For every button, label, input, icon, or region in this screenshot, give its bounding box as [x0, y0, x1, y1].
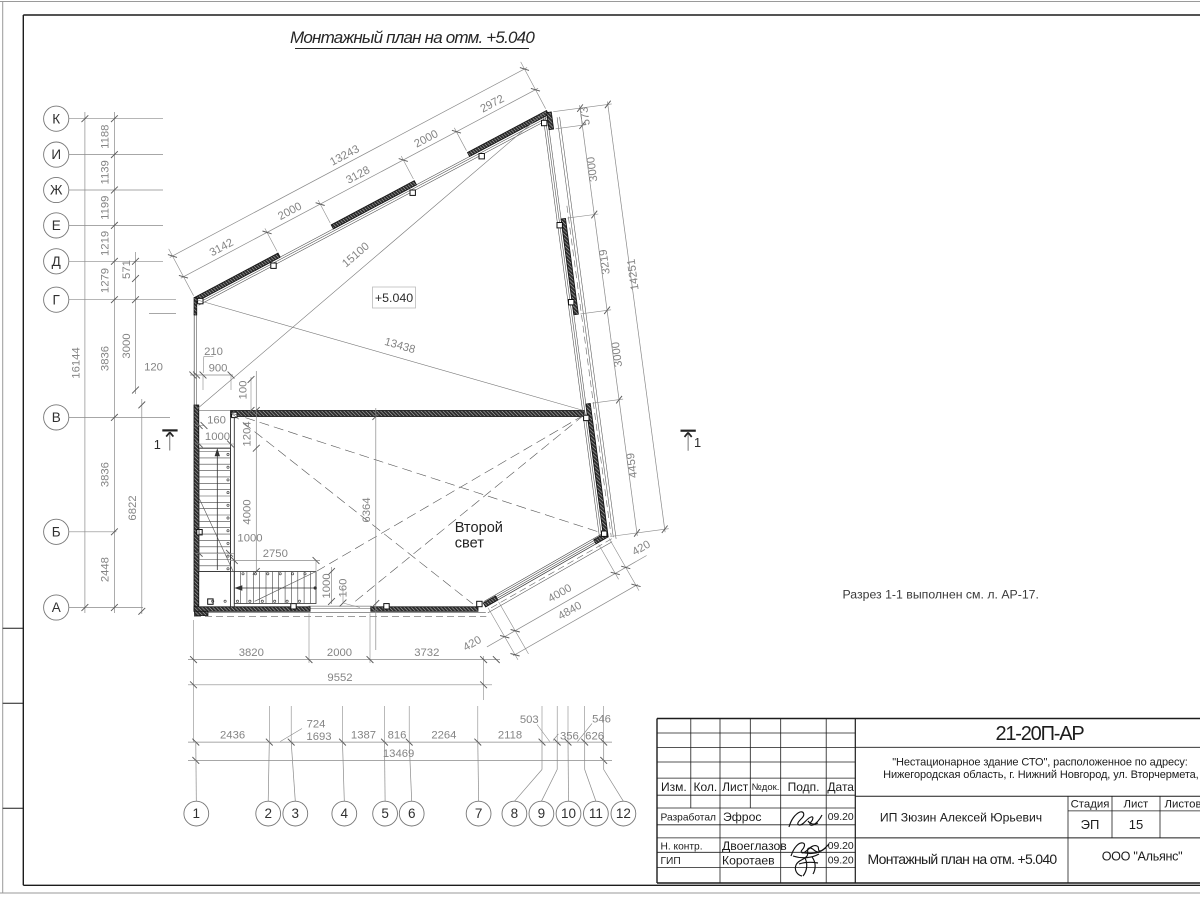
- svg-text:1000: 1000: [205, 431, 230, 443]
- svg-text:3: 3: [292, 806, 300, 821]
- svg-text:1188: 1188: [100, 125, 112, 149]
- svg-text:"Нестационарное здание СТО", р: "Нестационарное здание СТО", расположенн…: [892, 756, 1188, 768]
- svg-text:Лист: Лист: [722, 780, 749, 794]
- svg-text:ИП Зюзин Алексей Юрьевич: ИП Зюзин Алексей Юрьевич: [880, 811, 1042, 825]
- svg-text:Нижегородская область, г. Нижн: Нижегородская область, г. Нижний Новгоро…: [883, 769, 1200, 781]
- svg-text:09.20: 09.20: [828, 856, 854, 867]
- svg-text:Н. контр.: Н. контр.: [661, 842, 703, 853]
- svg-text:21-20П-АР: 21-20П-АР: [995, 723, 1084, 745]
- svg-text:Кол.: Кол.: [694, 780, 718, 794]
- svg-text:А: А: [52, 600, 61, 615]
- svg-text:2448: 2448: [100, 557, 112, 582]
- svg-text:6: 6: [408, 806, 416, 821]
- svg-text:Г: Г: [53, 292, 61, 307]
- svg-text:Ж: Ж: [50, 183, 63, 198]
- svg-text:3836: 3836: [100, 462, 112, 487]
- svg-text:Д: Д: [52, 254, 61, 269]
- svg-text:Дата: Дата: [827, 780, 854, 794]
- svg-text:Лист: Лист: [1124, 799, 1150, 811]
- svg-text:В: В: [52, 410, 61, 425]
- svg-text:3836: 3836: [100, 346, 112, 371]
- svg-text:Коротаев: Коротаев: [722, 854, 775, 868]
- svg-text:1000: 1000: [321, 573, 333, 598]
- svg-text:09.20: 09.20: [828, 841, 854, 852]
- svg-text:120: 120: [144, 361, 163, 373]
- svg-text:2: 2: [264, 806, 272, 821]
- svg-text:724: 724: [307, 719, 326, 731]
- svg-text:816: 816: [388, 729, 407, 741]
- svg-text:100: 100: [237, 381, 249, 400]
- svg-text:Стадия: Стадия: [1071, 799, 1110, 811]
- svg-text:6364: 6364: [361, 497, 373, 522]
- svg-text:626: 626: [585, 731, 604, 743]
- svg-text:Разработал: Разработал: [661, 811, 717, 823]
- svg-text:573: 573: [578, 106, 592, 126]
- svg-text:1000: 1000: [237, 533, 262, 545]
- svg-text:571: 571: [121, 260, 133, 279]
- svg-text:ООО "Альянс": ООО "Альянс": [1102, 850, 1183, 864]
- svg-text:1: 1: [154, 437, 161, 452]
- svg-text:5: 5: [381, 806, 389, 821]
- svg-text:1693: 1693: [306, 731, 331, 743]
- svg-text:900: 900: [209, 363, 228, 375]
- svg-text:09.20: 09.20: [828, 812, 854, 823]
- svg-text:160: 160: [207, 414, 226, 426]
- svg-text:3732: 3732: [414, 647, 439, 659]
- svg-text:503: 503: [520, 714, 539, 726]
- svg-text:10: 10: [561, 806, 576, 821]
- svg-text:Второй: Второй: [455, 520, 503, 536]
- svg-text:Изм.: Изм.: [661, 780, 687, 794]
- svg-text:3000: 3000: [121, 333, 133, 358]
- svg-text:Разрез 1-1 выполнен см. л. АР-: Разрез 1-1 выполнен см. л. АР-17.: [843, 587, 1039, 601]
- svg-text:+5.040: +5.040: [375, 291, 413, 305]
- svg-text:160: 160: [338, 579, 350, 598]
- svg-text:3820: 3820: [239, 647, 264, 659]
- svg-text:Е: Е: [52, 218, 61, 233]
- svg-text:ЭП: ЭП: [1081, 817, 1100, 832]
- svg-text:7: 7: [475, 806, 483, 821]
- svg-text:1387: 1387: [351, 729, 376, 741]
- svg-text:1199: 1199: [100, 196, 112, 220]
- svg-text:1: 1: [193, 806, 201, 821]
- svg-text:свет: свет: [455, 536, 485, 552]
- svg-text:№док.: №док.: [752, 782, 780, 793]
- svg-text:Монтажный план на отм. +5.040: Монтажный план на отм. +5.040: [290, 28, 535, 47]
- svg-text:4000: 4000: [242, 499, 254, 524]
- svg-text:9: 9: [538, 806, 546, 821]
- svg-text:Б: Б: [52, 524, 61, 539]
- svg-text:1279: 1279: [100, 268, 112, 293]
- svg-text:6822: 6822: [127, 495, 139, 520]
- svg-text:1204: 1204: [242, 421, 254, 446]
- svg-text:9552: 9552: [327, 672, 352, 684]
- svg-text:ГИП: ГИП: [661, 856, 681, 867]
- svg-text:2750: 2750: [263, 548, 288, 560]
- svg-text:Эфрос: Эфрос: [723, 810, 761, 824]
- svg-text:2118: 2118: [498, 729, 522, 741]
- svg-text:11: 11: [589, 806, 603, 821]
- svg-text:2000: 2000: [327, 647, 352, 659]
- svg-text:16144: 16144: [71, 347, 83, 378]
- svg-text:Монтажный план на отм. +5.040: Монтажный план на отм. +5.040: [867, 851, 1057, 867]
- svg-text:1: 1: [694, 435, 701, 450]
- svg-text:356: 356: [560, 731, 579, 743]
- svg-text:И: И: [51, 147, 61, 162]
- svg-text:4: 4: [341, 806, 349, 821]
- svg-text:2264: 2264: [431, 729, 456, 741]
- svg-text:12: 12: [616, 806, 631, 821]
- svg-text:К: К: [52, 111, 60, 126]
- svg-text:Двоеглазов: Двоеглазов: [722, 839, 787, 853]
- svg-text:2436: 2436: [220, 729, 245, 741]
- svg-text:15: 15: [1129, 817, 1143, 832]
- svg-text:546: 546: [592, 713, 611, 725]
- svg-text:Листов: Листов: [1164, 799, 1200, 811]
- svg-text:1219: 1219: [100, 231, 112, 256]
- svg-text:8: 8: [511, 806, 519, 821]
- svg-text:1139: 1139: [100, 160, 112, 184]
- svg-text:Подп.: Подп.: [788, 780, 820, 794]
